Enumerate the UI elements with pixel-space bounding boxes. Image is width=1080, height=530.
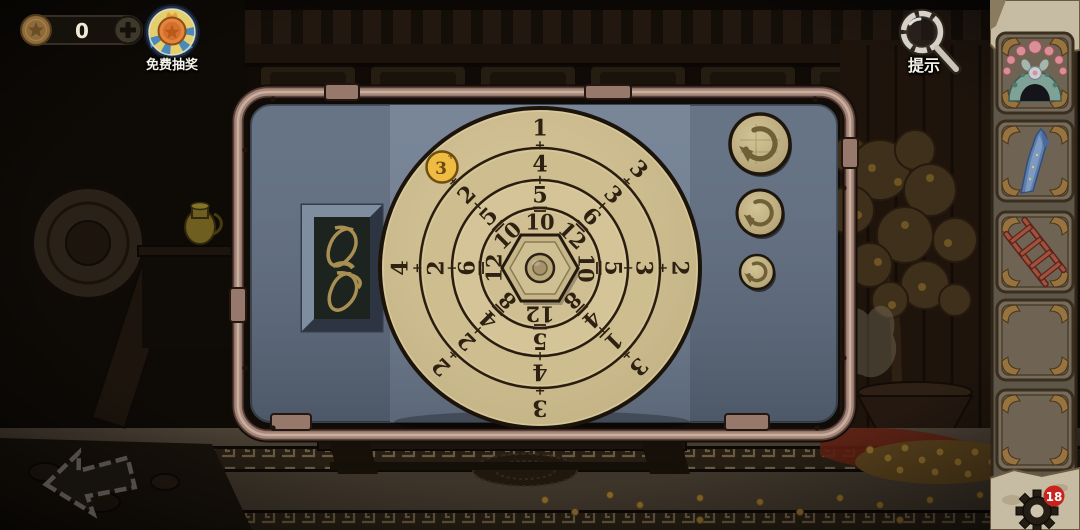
svg-text:10: 10 <box>525 209 554 234</box>
medal-star-badge-icon <box>136 4 208 60</box>
back-arrow-icon <box>43 447 137 518</box>
token-value: 3 <box>435 159 447 179</box>
svg-text:12: 12 <box>525 302 554 327</box>
svg-text:5: 5 <box>532 183 547 209</box>
svg-text:5: 5 <box>599 260 625 275</box>
svg-text:6: 6 <box>455 260 481 275</box>
badge-count: 18 <box>1046 490 1063 504</box>
rotate-outer-ring-button[interactable] <box>730 114 792 177</box>
free-lottery-button[interactable]: 免费抽奖 <box>136 4 208 80</box>
clue-token: 3 + <box>427 152 458 183</box>
inventory-slot-4[interactable] <box>997 300 1073 380</box>
hint-button[interactable]: 提示 <box>882 2 992 80</box>
token-plus: + <box>447 152 455 162</box>
inventory-sidebar: 18 <box>990 0 1080 530</box>
inventory-slot-1[interactable] <box>997 33 1073 113</box>
notification-badge: 18 <box>1044 486 1065 507</box>
coin-counter: 0 <box>16 12 156 48</box>
back-button[interactable] <box>36 446 146 524</box>
inventory-slot-3[interactable] <box>997 212 1073 292</box>
hint-label: 提示 <box>888 52 960 76</box>
star-coin-icon <box>21 15 51 45</box>
coin-count-value: 0 <box>75 19 89 43</box>
number-dial: 1+4+5103+3+6122+3+5103+1+483+4+5122+2+48… <box>380 108 700 433</box>
rope-niche[interactable] <box>302 205 382 331</box>
inventory-slot-5[interactable] <box>997 390 1073 470</box>
rotate-middle-ring-button[interactable] <box>737 190 785 239</box>
inventory-slot-2[interactable] <box>997 121 1073 201</box>
puzzle-panel: 1+4+5103+3+6122+3+5103+1+483+4+5122+2+48… <box>225 78 865 450</box>
svg-text:5: 5 <box>532 327 547 353</box>
free-lottery-label: 免费抽奖 <box>136 54 208 73</box>
game-screen: 1+4+5103+3+6122+3+5103+1+483+4+5122+2+48… <box>0 0 1080 530</box>
